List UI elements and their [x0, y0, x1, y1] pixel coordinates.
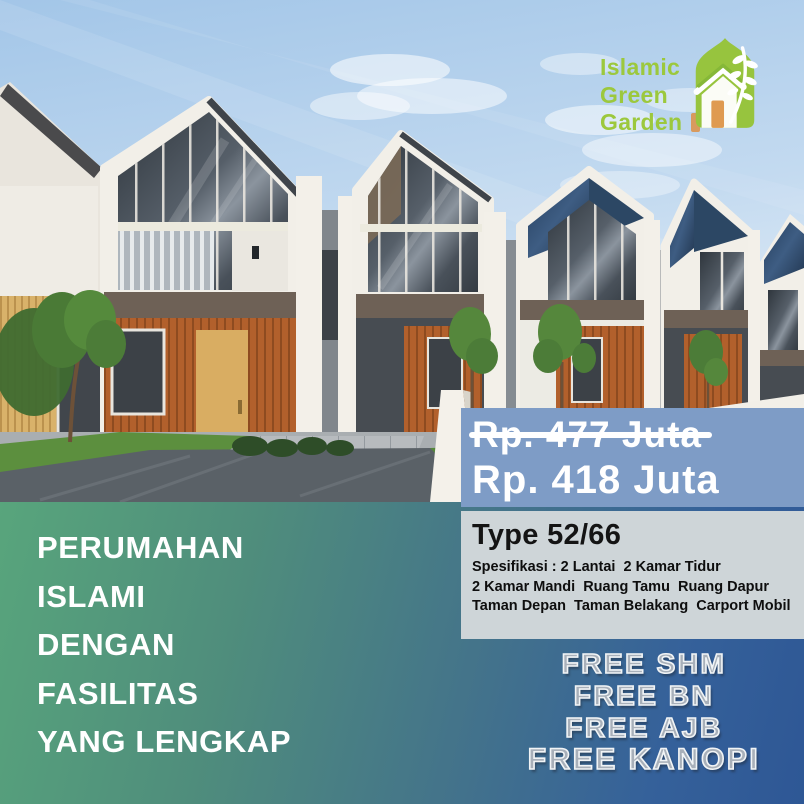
- freebie-ajb: FREE AJB: [477, 712, 804, 744]
- headline-line-1: PERUMAHAN: [37, 524, 291, 573]
- headline-line-4: FASILITAS: [37, 670, 291, 719]
- price-panel: Rp. 477 Juta Rp. 418 Juta: [461, 408, 804, 507]
- headline: PERUMAHAN ISLAMI DENGAN FASILITAS YANG L…: [37, 524, 291, 767]
- spec-line-2: 2 Kamar Mandi Ruang Tamu Ruang Dapur: [472, 578, 804, 598]
- spec-line-3: Taman Depan Taman Belakang Carport Mobil: [472, 597, 804, 617]
- freebies-list: FREE SHM FREE BN FREE AJB FREE KANOPI: [477, 648, 804, 776]
- logo-house-leaf-icon: [686, 36, 764, 130]
- new-price: Rp. 418 Juta: [472, 457, 804, 504]
- spec-panel: Type 52/66 Spesifikasi : 2 Lantai 2 Kama…: [461, 511, 804, 639]
- freebie-bn: FREE BN: [477, 680, 804, 712]
- spec-line-1: Spesifikasi : 2 Lantai 2 Kamar Tidur: [472, 558, 804, 578]
- logo-line-garden: Garden: [600, 109, 682, 137]
- freebie-shm: FREE SHM: [477, 648, 804, 680]
- old-price: Rp. 477 Juta: [472, 412, 702, 457]
- headline-line-2: ISLAMI: [37, 573, 291, 622]
- freebie-kanopi: FREE KANOPI: [477, 744, 804, 776]
- headline-line-3: DENGAN: [37, 621, 291, 670]
- flyer: Rp. 477 Juta Rp. 418 Juta Type 52/66 Spe…: [0, 0, 804, 804]
- headline-line-5: YANG LENGKAP: [37, 718, 291, 767]
- unit-type: Type 52/66: [472, 519, 804, 552]
